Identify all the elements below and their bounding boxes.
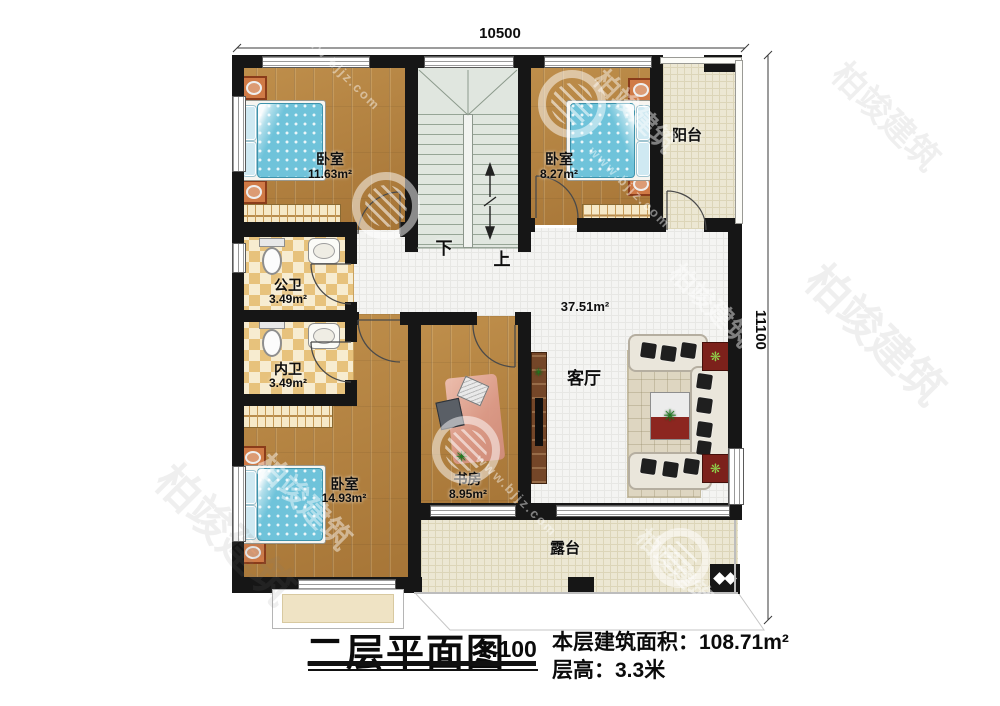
wall [408, 312, 421, 593]
wall [345, 312, 359, 325]
dimension-width: 10500 [460, 26, 540, 42]
wall [518, 218, 535, 232]
window [544, 56, 652, 68]
wall [518, 312, 531, 512]
floor-area-label: 本层建筑面积： [552, 631, 699, 654]
window [556, 505, 730, 517]
sink [308, 238, 340, 264]
room-area-inner-bathroom: 3.49m² [254, 377, 322, 390]
tv [535, 398, 543, 446]
room-area-living: 37.51m² [548, 300, 622, 314]
room-label-living: 客厅 [553, 370, 615, 388]
balcony-railing [660, 57, 742, 64]
room-area-bedroom-top-left: 11.63m² [295, 168, 365, 181]
window [430, 505, 516, 517]
sink [308, 323, 340, 349]
floor-area-value: 108.71m² [699, 631, 789, 654]
side-table: ❋ [702, 454, 729, 483]
room-label-bedroom-top-left: 卧室 [295, 152, 365, 167]
stair-up-label: 上 [490, 251, 514, 269]
window [232, 96, 246, 172]
toilet [262, 329, 282, 357]
floor-plan-page: { "title_block": { "title": "二层平面图", "sc… [0, 0, 1000, 706]
wall [418, 312, 477, 325]
floor-height-info: 层高：3.3米 [552, 654, 665, 684]
nightstand [241, 180, 267, 204]
toilet-tank [259, 238, 285, 247]
room-label-inner-bathroom: 内卫 [258, 362, 318, 377]
floor-height-value: 3.3米 [615, 659, 665, 682]
room-area-study: 8.95m² [432, 488, 504, 501]
room-area-bedroom-top-right: 8.27m² [524, 168, 594, 181]
stair-divider [463, 114, 473, 248]
window [424, 56, 514, 68]
watermark-logo-icon [352, 172, 420, 240]
room-label-terrace: 露台 [536, 541, 594, 557]
window [232, 243, 246, 273]
stair-down-label: 下 [432, 240, 456, 258]
room-area-public-bathroom: 3.49m² [254, 293, 322, 306]
balcony-railing [735, 60, 743, 224]
wall [345, 222, 357, 264]
room-label-public-bathroom: 公卫 [258, 278, 318, 293]
bay-ledge-inner [282, 594, 394, 623]
plant-icon: ✳ [534, 366, 543, 379]
watermark-brand-faint: 柏竣建筑 [793, 247, 963, 417]
room-label-bedroom-top-right: 卧室 [524, 152, 594, 167]
coffee-table: ✳ [650, 392, 690, 440]
floor-area-info: 本层建筑面积：108.71m² [552, 626, 789, 656]
side-table: ❋ [702, 342, 729, 371]
wall [232, 394, 357, 406]
wall [232, 310, 357, 322]
wall [232, 222, 357, 237]
title-underline-2 [308, 669, 538, 671]
watermark-brand-faint: 柏竣建筑 [823, 49, 954, 180]
terrace-edge [734, 520, 736, 594]
toilet [262, 247, 282, 275]
window [728, 448, 744, 505]
wall-post [568, 577, 594, 593]
title-underline [308, 661, 536, 666]
wardrobe [240, 404, 333, 428]
window [262, 56, 370, 68]
floor-height-label: 层高： [552, 659, 615, 682]
plan-scale: 1:100 [478, 636, 537, 663]
